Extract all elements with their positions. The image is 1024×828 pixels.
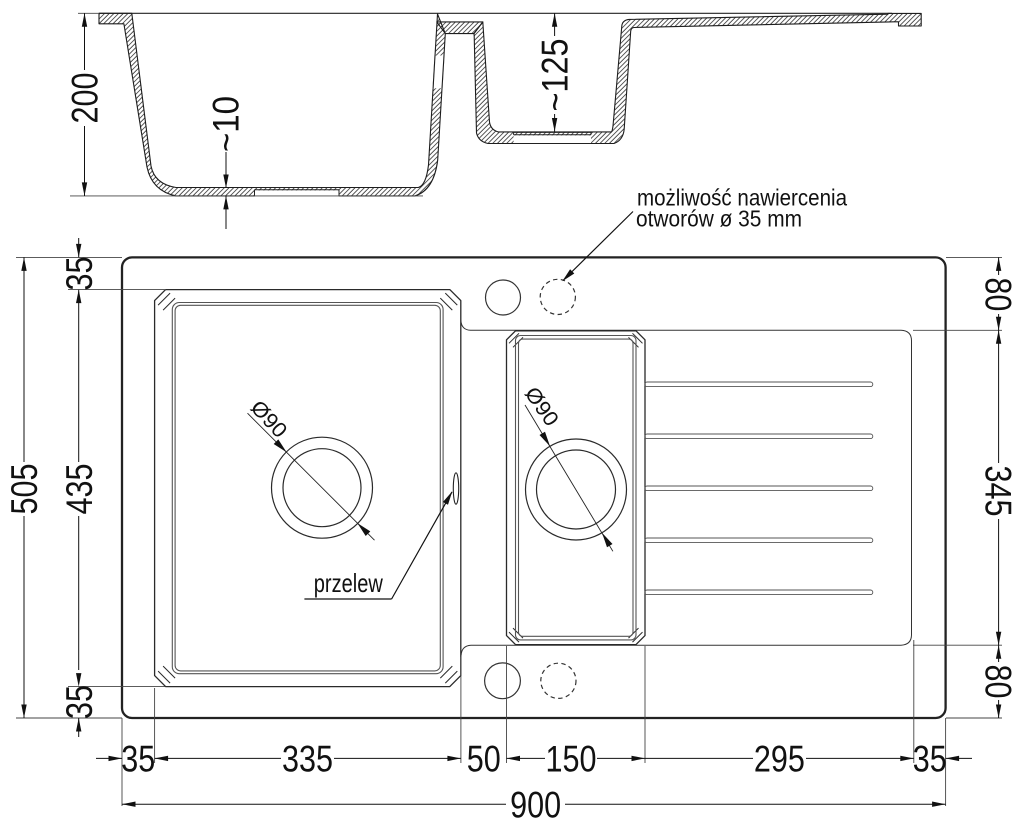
- svg-text:~10: ~10: [206, 96, 247, 152]
- svg-text:505: 505: [4, 464, 45, 515]
- svg-text:80: 80: [977, 665, 1018, 699]
- svg-text:~125: ~125: [534, 39, 575, 112]
- svg-text:200: 200: [65, 73, 106, 124]
- svg-text:335: 335: [282, 739, 333, 780]
- svg-text:295: 295: [754, 739, 805, 780]
- svg-text:35: 35: [121, 739, 155, 780]
- svg-text:150: 150: [546, 739, 597, 780]
- svg-text:345: 345: [977, 466, 1018, 517]
- svg-text:900: 900: [510, 784, 561, 825]
- svg-text:otworów ø 35 mm: otworów ø 35 mm: [636, 205, 802, 231]
- svg-text:35: 35: [913, 739, 947, 780]
- svg-text:przelew: przelew: [314, 568, 383, 598]
- svg-text:80: 80: [977, 277, 1018, 311]
- svg-text:35: 35: [59, 257, 100, 291]
- svg-text:35: 35: [59, 685, 100, 719]
- svg-text:435: 435: [59, 464, 100, 515]
- svg-text:50: 50: [467, 739, 501, 780]
